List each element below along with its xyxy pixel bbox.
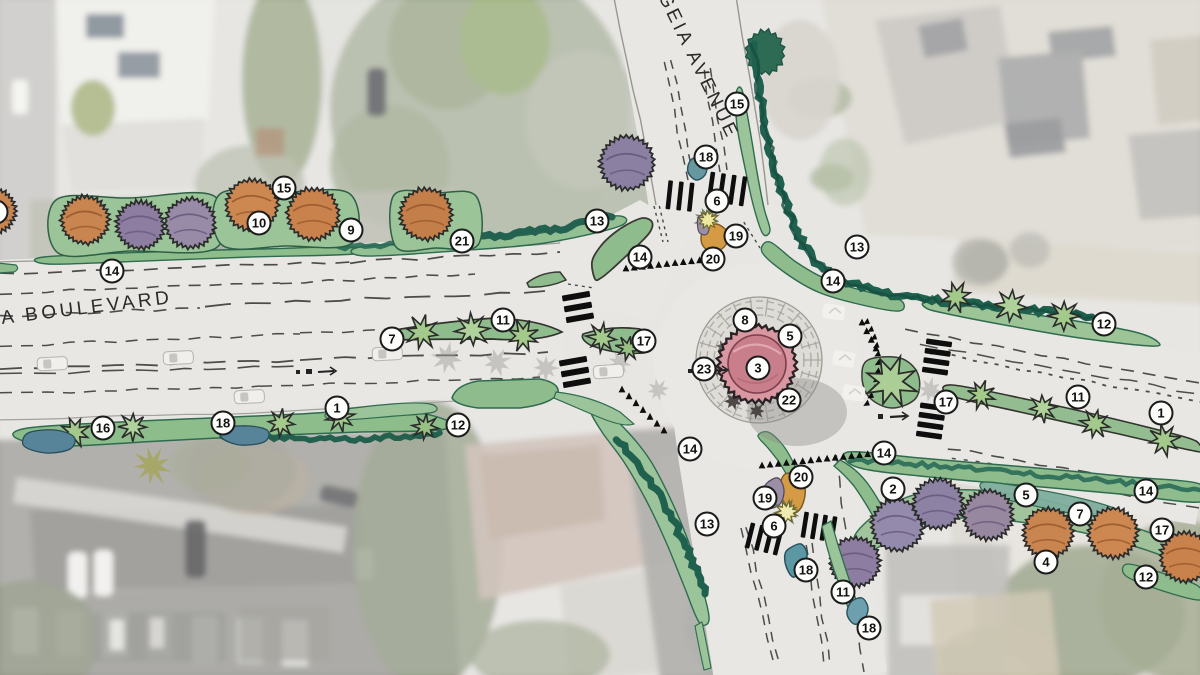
- svg-text:10: 10: [252, 216, 266, 231]
- svg-text:11: 11: [1071, 390, 1085, 405]
- svg-text:13: 13: [590, 214, 604, 229]
- svg-text:1: 1: [1157, 406, 1164, 421]
- svg-text:23: 23: [697, 362, 711, 377]
- svg-text:9: 9: [347, 223, 354, 238]
- svg-text:15: 15: [277, 181, 291, 196]
- svg-text:11: 11: [836, 585, 850, 600]
- svg-text:5: 5: [786, 329, 793, 344]
- svg-text:22: 22: [782, 393, 796, 408]
- svg-text:6: 6: [713, 194, 720, 209]
- svg-text:14: 14: [633, 250, 648, 265]
- svg-text:14: 14: [105, 264, 120, 279]
- svg-text:2: 2: [889, 482, 896, 497]
- svg-text:17: 17: [939, 395, 953, 410]
- svg-text:4: 4: [1042, 555, 1050, 570]
- svg-text:16: 16: [96, 421, 110, 436]
- svg-text:19: 19: [758, 491, 772, 506]
- svg-text:19: 19: [729, 229, 743, 244]
- svg-text:12: 12: [451, 418, 465, 433]
- svg-text:18: 18: [699, 150, 713, 165]
- svg-text:18: 18: [799, 563, 813, 578]
- svg-text:7: 7: [388, 332, 395, 347]
- svg-text:8: 8: [741, 313, 748, 328]
- svg-text:5: 5: [1022, 488, 1029, 503]
- svg-text:14: 14: [877, 446, 892, 461]
- svg-text:1: 1: [333, 401, 340, 416]
- svg-text:3: 3: [754, 361, 761, 376]
- svg-text:6: 6: [770, 519, 777, 534]
- svg-text:14: 14: [826, 274, 841, 289]
- svg-text:18: 18: [216, 416, 230, 431]
- svg-text:12: 12: [1097, 317, 1111, 332]
- svg-text:17: 17: [1155, 523, 1169, 538]
- svg-text:20: 20: [706, 252, 720, 267]
- svg-text:14: 14: [683, 442, 698, 457]
- svg-text:14: 14: [1139, 484, 1154, 499]
- svg-text:21: 21: [455, 234, 469, 249]
- svg-text:12: 12: [1139, 570, 1153, 585]
- svg-text:11: 11: [496, 313, 510, 328]
- svg-text:15: 15: [730, 97, 744, 112]
- svg-text:7: 7: [1076, 507, 1083, 522]
- svg-text:18: 18: [862, 621, 876, 636]
- svg-text:20: 20: [794, 470, 808, 485]
- svg-text:17: 17: [637, 334, 651, 349]
- svg-text:13: 13: [700, 517, 714, 532]
- svg-text:13: 13: [850, 240, 864, 255]
